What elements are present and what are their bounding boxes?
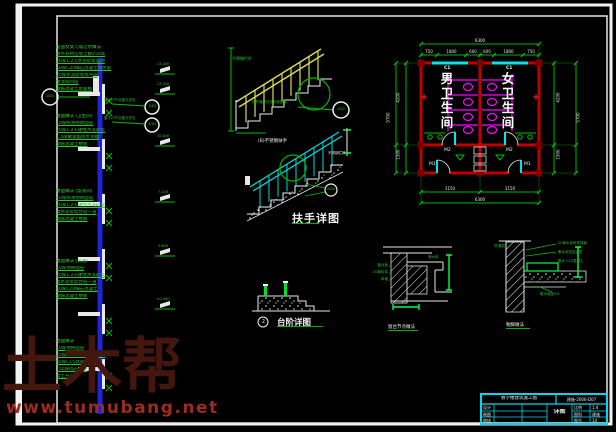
spec-line: 10厚防滑地砖面层: [56, 121, 158, 128]
dim-seg: 750: [522, 49, 540, 54]
titleblock-project: 教学楼建筑施工图: [485, 396, 553, 401]
stair-leader-note: 栏杆做法详见标准图集: [252, 100, 287, 105]
dim-seg: 1800: [499, 49, 518, 54]
stair-side-note: 不锈钢栏杆: [328, 151, 346, 156]
titleblock-row-label: 图号: [574, 418, 582, 423]
title-underline: [277, 326, 323, 327]
titleblock-row-label: 比例: [574, 405, 582, 410]
titleblock-row-value: 1:4: [592, 405, 598, 410]
callout-label: 窗上口节点做法详见: [104, 98, 136, 103]
dim-seg: 750: [420, 49, 438, 54]
spec-line: 素水泥浆结合层一道: [56, 280, 158, 287]
titleblock-row-label: 设计: [483, 405, 491, 410]
titleblock-row-label: 审核: [483, 418, 491, 423]
stair-label: (B)不锈钢扶手: [258, 139, 287, 145]
detail-note: 20厚砂浆: [360, 270, 388, 275]
spec-line: 20厚1:2.5水泥砂浆压顶: [56, 59, 158, 66]
room-label-women: 女卫生间: [501, 72, 515, 130]
titleblock-row-value: 14: [592, 418, 597, 423]
dim-seg: 3150: [500, 186, 520, 191]
dim-seg: 4200: [556, 88, 561, 108]
detail-note: 砖墙: [360, 277, 388, 282]
title-underline: [506, 328, 530, 329]
spec-line: 20厚1:2干硬性水泥砂浆: [56, 128, 158, 135]
stair-note: 不锈钢栏杆: [232, 56, 252, 61]
spec-line: 钢筋混凝土楼板: [56, 142, 158, 149]
spec-line: 保温隔热层: [56, 80, 158, 87]
spec-line: 钢筋混凝土楼板: [56, 217, 158, 224]
detail-note: 窗台板: [360, 263, 388, 268]
dim-seg: 4200: [396, 88, 401, 108]
callout-ref: 1/D2: [333, 107, 349, 112]
title-underline: [388, 330, 418, 331]
spec-line: 20厚1:2干硬性水泥砂浆: [56, 203, 158, 210]
dim-top-total: 6300: [470, 38, 490, 43]
spec-line: 40厚C20细石混凝土防水层: [56, 66, 158, 73]
dim-seg: 1500: [556, 145, 561, 165]
window-tag: C1: [444, 66, 450, 72]
spec-line: 20厚水泥砂浆找平层: [56, 73, 158, 80]
title-underline: [292, 223, 319, 224]
dim-seg: 1500: [396, 145, 401, 165]
spec-line: 钢筋混凝土楼板: [56, 294, 158, 301]
spec-stack-header: 屋面及女儿墙泛水做法: [56, 45, 166, 52]
detail-note: 滴水线: [428, 255, 439, 260]
callout-ref: 1/D1: [42, 94, 58, 99]
door-tag: M1: [524, 162, 531, 168]
titleblock-code: 建施-2006-D07: [558, 397, 605, 402]
door-tag: M2: [506, 148, 513, 154]
level-value: 14.400: [150, 62, 176, 67]
spec-line: 20厚1:2干硬性水泥砂浆: [56, 273, 158, 280]
spec-line: 防水卷材沿墙上翻250高: [56, 52, 158, 59]
dim-left-total: 5700: [386, 108, 391, 128]
node-detail-a: [383, 247, 452, 310]
level-value: 7.200: [150, 190, 176, 195]
dim-right-total: 5700: [576, 108, 581, 128]
spec-line: 素水泥浆结合层一道: [56, 210, 158, 217]
toilet-plan: [394, 42, 578, 205]
spec-line: 钢筋混凝土屋面板: [56, 87, 158, 94]
dim-seg: 600: [478, 49, 496, 54]
titleblock-drawing-name: 详图: [548, 409, 571, 414]
window-tag: C1: [506, 66, 512, 72]
callout-ref: 2/D2: [324, 187, 338, 192]
steps-bubble-number: 2: [260, 319, 267, 325]
cad-drawing-sheet: 屋面及女儿墙泛水做法 防水卷材沿墙上翻250高 20厚1:2.5水泥砂浆压顶 4…: [0, 0, 616, 432]
callout-ref: 3/D1: [145, 104, 160, 109]
detail-note: 20厚水泥砂浆抹面: [558, 241, 587, 246]
detail-note: 防潮层: [486, 244, 505, 249]
spec-stack-header: 楼面做法 (普通): [56, 259, 166, 266]
dim-bottom-total: 6300: [470, 197, 490, 202]
callout-ref: 4/D1: [145, 122, 160, 127]
dim-seg: 3150: [440, 186, 460, 191]
dim-seg: 1800: [442, 49, 461, 54]
level-value: 13.200: [150, 82, 176, 87]
room-label-men: 男卫生间: [440, 72, 454, 130]
detail-note: 素水泥浆结合层: [558, 250, 583, 255]
detail-note: 散水坡度3%: [540, 292, 560, 297]
callout-label: 窗下口节点做法详见: [104, 116, 136, 121]
titleblock-row-value: 建施: [592, 412, 600, 417]
watermark-brand: 土木帮: [2, 336, 182, 398]
spec-line: 40厚C20细石混凝土: [56, 287, 158, 294]
titleblock-row-label: 制图: [483, 412, 491, 417]
spec-line: 1.5厚聚氨酯防水涂膜: [56, 135, 158, 142]
titleblock-row-label: 图别: [574, 412, 582, 417]
watermark-url: www.tumubang.net: [6, 398, 219, 418]
detail-note: 散水 C15混凝土: [558, 259, 584, 264]
spec-line: 10厚防滑地砖面层: [56, 196, 158, 203]
level-value: 10.800: [150, 134, 176, 139]
level-value: ±0.000: [150, 297, 176, 302]
spec-line: 10厚地砖面层: [56, 266, 158, 273]
door-tag: M1: [429, 162, 436, 168]
level-value: 3.600: [150, 244, 176, 249]
door-tag: M2: [444, 148, 451, 154]
